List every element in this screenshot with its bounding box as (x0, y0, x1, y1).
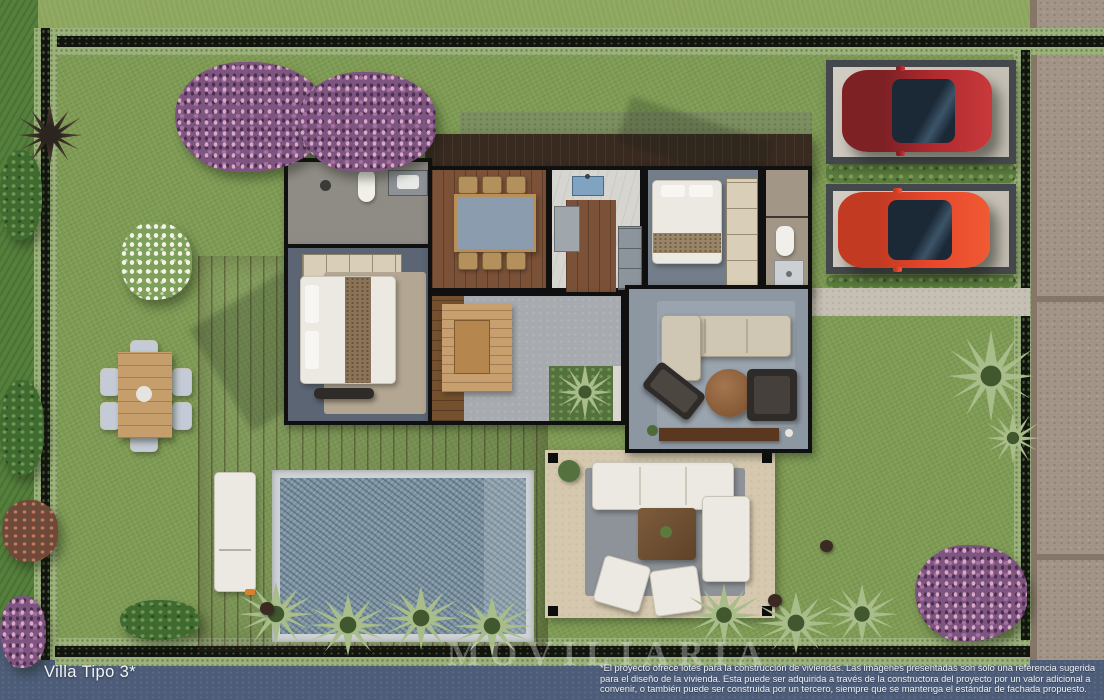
outdoor-armchair (649, 565, 703, 617)
outdoor-coffee-table (638, 508, 696, 560)
tableware (136, 386, 152, 402)
kitchen-appliances (618, 226, 642, 290)
car-dark-red (842, 70, 992, 152)
sofa-cushion-line (704, 319, 706, 353)
sidewalk-joint (1037, 296, 1104, 302)
car-mirror (893, 188, 902, 193)
bath-divider (766, 216, 808, 218)
bed-guest (652, 180, 722, 264)
lounger-fold (219, 549, 251, 551)
lounger-towel (245, 589, 255, 595)
flower-bush-right (915, 545, 1027, 641)
sidewalk (1030, 0, 1104, 700)
terrace-post (548, 606, 558, 616)
bed-master (300, 276, 396, 384)
dining-chair (458, 252, 478, 270)
dining-chair (482, 176, 502, 194)
armchair-cushion (754, 376, 790, 414)
car-roof-glass (888, 200, 952, 259)
shrub-left (0, 150, 42, 240)
garden-table (118, 352, 172, 438)
interior-garden (549, 366, 621, 421)
pillow (305, 285, 319, 323)
car-mirror (896, 151, 905, 156)
shower-tray (774, 260, 804, 288)
sofa-cushion-line (639, 467, 641, 505)
kitchen (548, 166, 644, 292)
car-mirror (893, 267, 902, 272)
garden-chair (100, 402, 120, 430)
legal-disclaimer: *El proyecto ofrece lotes para la constr… (600, 663, 1104, 695)
terrace-planter (558, 460, 580, 482)
garden-chair (100, 368, 120, 396)
shrub-left (0, 380, 44, 476)
outdoor-sofa-side (702, 496, 750, 582)
car-orange-red (838, 192, 990, 268)
garden-chair (172, 368, 192, 396)
pebble-strip (613, 366, 621, 421)
toilet (358, 170, 375, 202)
car-mirror (896, 66, 905, 71)
entry-bench (454, 320, 490, 374)
kitchen-sink (572, 176, 604, 196)
white-flower-bush (120, 222, 192, 300)
table-plant (660, 526, 672, 538)
sink-basin (397, 175, 419, 189)
garden-dining-set (100, 340, 192, 452)
bathroom-ensuite (762, 166, 812, 292)
hedge-top (34, 28, 1104, 55)
pillow (689, 185, 713, 197)
fan-palm (826, 584, 898, 644)
armchair (747, 369, 797, 421)
flower-bush-corner (0, 596, 46, 668)
tv-console (659, 428, 779, 441)
sun-lounger (214, 472, 256, 592)
wardrobe (726, 178, 758, 288)
hallway (428, 292, 625, 425)
pillow (305, 331, 319, 369)
faucet (585, 174, 590, 179)
ground-pot (260, 602, 274, 615)
sink-vanity (388, 170, 428, 196)
ground-pot (768, 594, 782, 607)
bedroom-guest (644, 166, 762, 292)
interior-palm (557, 364, 613, 420)
kitchen-island (554, 206, 580, 252)
entry-walkway (800, 288, 1030, 316)
console-vase (785, 429, 793, 437)
bed-bench (314, 388, 374, 399)
neighbor-lawn-left (0, 0, 38, 700)
living-room (625, 285, 812, 453)
rust-bush-left (2, 500, 58, 562)
dining-chair (506, 252, 526, 270)
toilet (776, 226, 794, 256)
villa-type-label: Villa Tipo 3* (44, 663, 136, 682)
ground-pot (820, 540, 833, 552)
sofa-cushion-line (746, 319, 748, 353)
shrub-bottom (120, 600, 200, 640)
sidewalk-joint (1037, 554, 1104, 560)
dining-chair (506, 176, 526, 194)
site-plan-render: MOVILIARIA Villa Tipo 3* *El proyecto of… (0, 0, 1104, 700)
driveway-shrubs (826, 163, 1016, 183)
terrace-post (548, 453, 558, 463)
terrace-post (762, 453, 772, 463)
shower-drain (786, 271, 792, 277)
hedge-right (1014, 50, 1031, 640)
dining-chair (482, 252, 502, 270)
bed-throw (653, 233, 721, 253)
flowering-tree (298, 72, 436, 172)
dining-table (454, 194, 536, 252)
sofa-cushion-line (685, 467, 687, 505)
dining-chair (458, 176, 478, 194)
shower-drain (320, 180, 331, 191)
driveway-shrubs (826, 275, 1016, 288)
car-roof-glass (892, 79, 955, 143)
console-plant (647, 425, 658, 436)
bedroom-master (284, 244, 432, 425)
garden-chair (172, 402, 192, 430)
dining-room (428, 166, 550, 292)
coffee-table-round (705, 369, 753, 417)
sidewalk-curb (1030, 0, 1037, 700)
bed-throw (345, 277, 371, 383)
pillow (661, 185, 685, 197)
